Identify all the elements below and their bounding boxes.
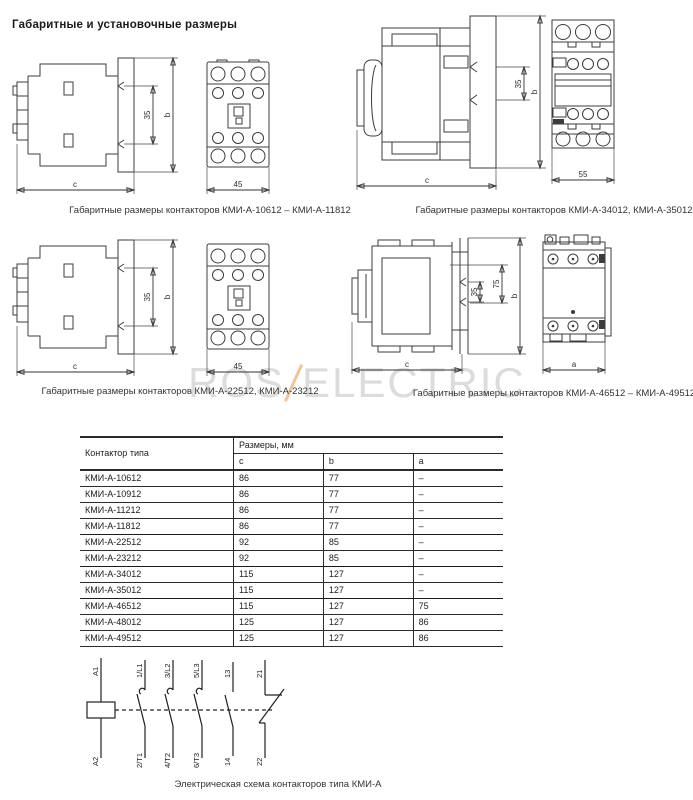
dim-rail: 35 <box>514 79 523 88</box>
label-t3: 6/T3 <box>192 753 201 768</box>
dim-height: b <box>510 293 519 298</box>
table-row: КМИ-А-4801212512786 <box>80 615 503 631</box>
label-21: 21 <box>255 670 264 678</box>
header-b: b <box>323 454 413 471</box>
front-view <box>552 20 614 148</box>
schematic-caption: Электрическая схема контакторов типа КМИ… <box>128 779 428 790</box>
dim-front-width: 55 <box>579 170 588 179</box>
dim-height: b <box>163 294 172 299</box>
table-header-row: Контактор типа Размеры, мм <box>80 437 503 454</box>
dim-front-width: a <box>572 360 577 369</box>
side-view <box>13 240 134 354</box>
drawing-caption-2: Габаритные размеры контакторов КМИ-А-340… <box>404 205 693 216</box>
label-a2: A2 <box>91 757 100 766</box>
table-row: КМИ-А-225129285– <box>80 535 503 551</box>
drawing-caption-3: Габаритные размеры контакторов КМИ-А-225… <box>25 386 335 397</box>
dimensions: 35 b c 45 <box>17 58 269 194</box>
dim-width: c <box>73 180 77 189</box>
electrical-schematic: A1 A2 1/L1 2/T1 3/L2 4/T2 5/L3 6/T3 13 1… <box>58 648 388 776</box>
dimension-drawing-34012-35012: 35 b c 55 <box>352 8 642 203</box>
terminal-labels: A1 A2 1/L1 2/T1 3/L2 4/T2 5/L3 6/T3 13 1… <box>91 663 264 768</box>
table-row: КМИ-А-106128677– <box>80 470 503 487</box>
dim-height: b <box>530 89 539 94</box>
label-l1: 1/L1 <box>135 663 144 678</box>
table-row: КМИ-А-4651211512775 <box>80 599 503 615</box>
document-page: Габаритные и установочные размеры ROS EL… <box>0 0 693 800</box>
dimension-drawing-46512-49512: 35 75 b c a <box>350 230 640 380</box>
table-row: КМИ-А-232129285– <box>80 551 503 567</box>
header-contactor-type: Контактор типа <box>80 437 234 470</box>
label-14: 14 <box>223 758 232 766</box>
label-22: 22 <box>255 758 264 766</box>
header-dimensions: Размеры, мм <box>234 437 504 454</box>
front-view <box>543 235 611 342</box>
label-t2: 4/T2 <box>163 753 172 768</box>
side-view <box>13 58 134 172</box>
dim-height: b <box>163 112 172 117</box>
front-view <box>207 244 269 349</box>
dim-front-width: 45 <box>234 362 243 371</box>
dim-width: c <box>73 362 77 371</box>
label-t1: 2/T1 <box>135 753 144 768</box>
header-a: a <box>413 454 503 471</box>
header-c: c <box>234 454 324 471</box>
side-view <box>352 238 468 354</box>
table-row: КМИ-А-4951212512786 <box>80 631 503 647</box>
page-title: Габаритные и установочные размеры <box>12 19 237 31</box>
dimensions: 35 b c 45 <box>17 240 269 376</box>
table-row: КМИ-А-118128677– <box>80 519 503 535</box>
front-view <box>207 60 269 167</box>
dimensions-table: Контактор типа Размеры, мм c b a КМИ-А-1… <box>80 436 503 647</box>
label-l2: 3/L2 <box>163 663 172 678</box>
dim-front-width: 45 <box>234 180 243 189</box>
drawing-caption-1: Габаритные размеры контакторов КМИ-А-106… <box>60 205 360 216</box>
label-13: 13 <box>223 670 232 678</box>
label-a1: A1 <box>91 667 100 676</box>
dim-rail: 35 <box>470 287 479 296</box>
dimension-drawing-22512-23212: 35 b c 45 <box>12 234 282 384</box>
label-l3: 5/L3 <box>192 663 201 678</box>
table-row: КМИ-А-109128677– <box>80 487 503 503</box>
table-row: КМИ-А-34012115127– <box>80 567 503 583</box>
table-row: КМИ-А-112128677– <box>80 503 503 519</box>
dim-rail: 35 <box>143 110 152 119</box>
drawing-caption-4: Габаритные размеры контакторов КМИ-А-465… <box>404 388 693 399</box>
dim-width: c <box>405 360 409 369</box>
dimension-drawing-10612-11812: 35 b c 45 <box>12 52 282 202</box>
dim-width: c <box>425 176 429 185</box>
dim-rail: 35 <box>143 292 152 301</box>
dim-inner: 75 <box>492 279 501 288</box>
table-row: КМИ-А-35012115127– <box>80 583 503 599</box>
side-view <box>357 16 496 168</box>
